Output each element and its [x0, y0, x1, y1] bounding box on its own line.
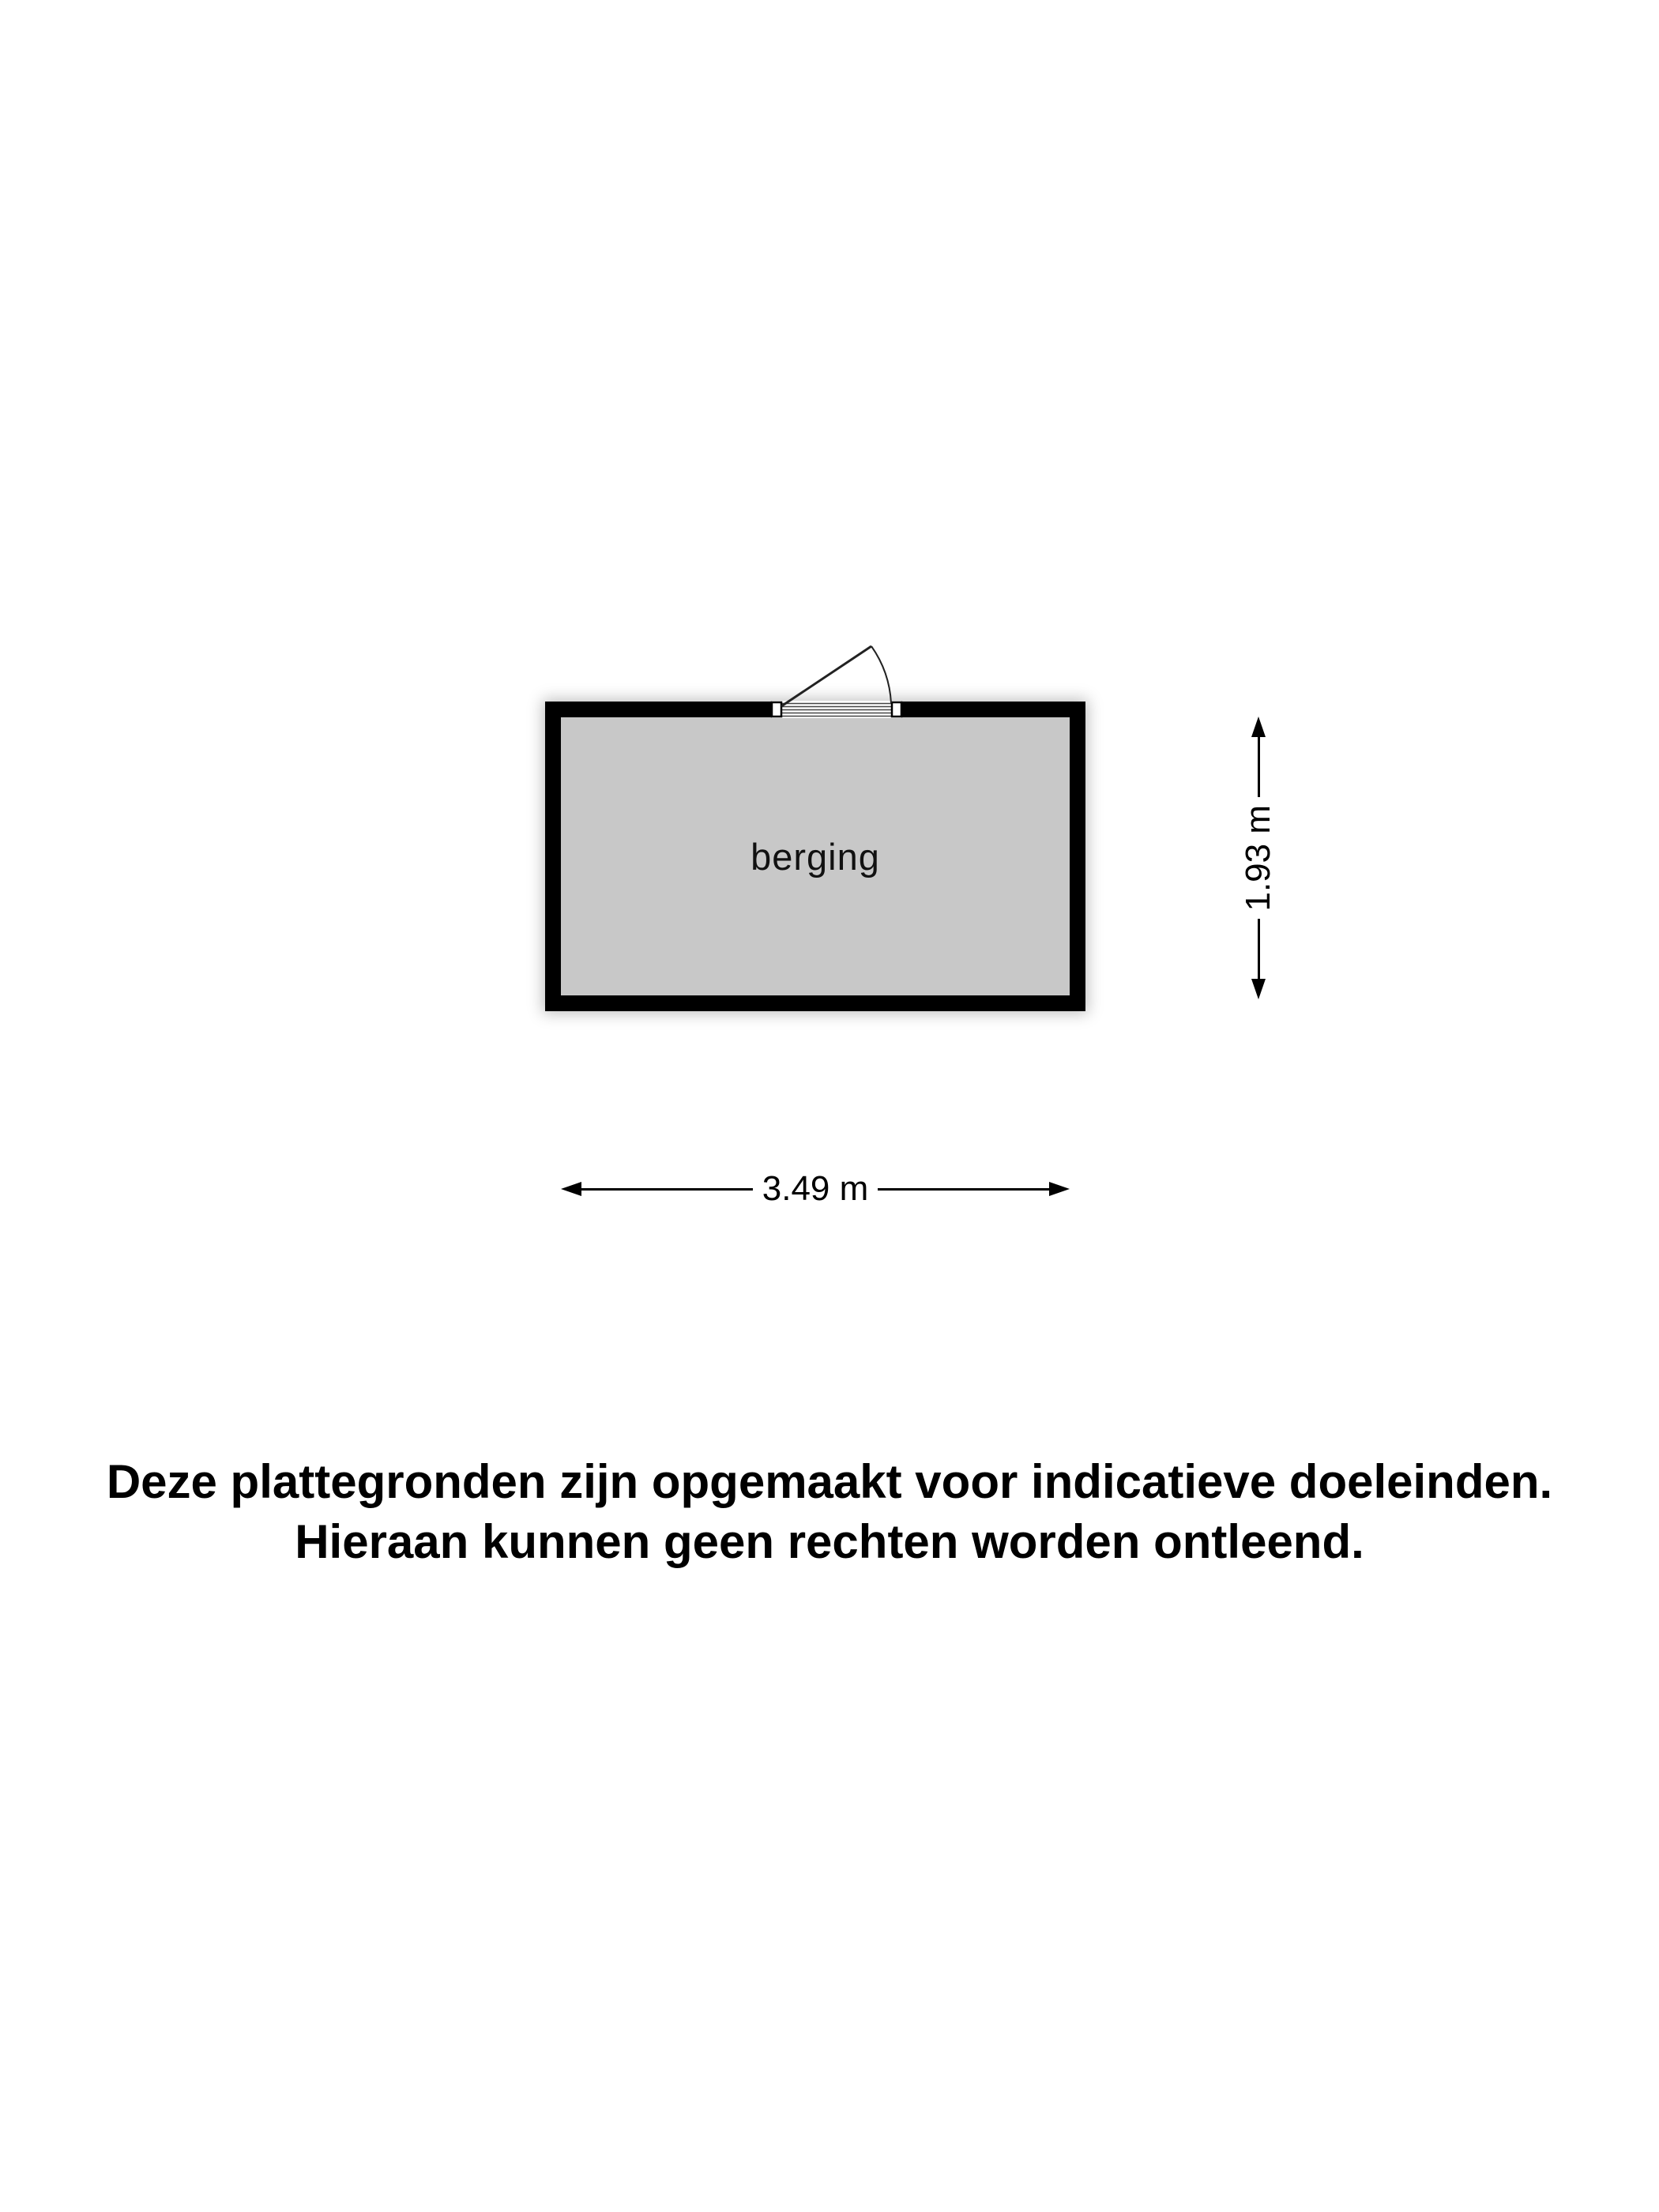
- disclaimer-text: Deze plattegronden zijn opgemaakt voor i…: [0, 1452, 1659, 1572]
- room-floor: berging: [561, 717, 1070, 995]
- room-label: berging: [750, 835, 880, 878]
- door-jamb-left: [772, 702, 781, 717]
- door-swing-arc: [871, 646, 891, 703]
- height-dimension: 1.93 m: [1238, 717, 1279, 999]
- disclaimer-line-2: Hieraan kunnen geen rechten worden ontle…: [0, 1512, 1659, 1572]
- door-jamb-right: [892, 702, 901, 717]
- dimension-line: [581, 1188, 753, 1191]
- width-dimension: 3.49 m: [561, 1170, 1070, 1208]
- arrow-left-icon: [561, 1182, 581, 1196]
- floorplan-page: berging 1.93 m 3.49 m Deze platte: [0, 0, 1659, 2212]
- door: [758, 628, 916, 731]
- dimension-line: [1258, 737, 1260, 797]
- door-leaf: [781, 646, 871, 706]
- arrow-right-icon: [1049, 1182, 1070, 1196]
- width-dimension-label: 3.49 m: [762, 1169, 869, 1209]
- arrow-up-icon: [1251, 717, 1266, 737]
- dimension-line: [878, 1188, 1049, 1191]
- height-dimension-label: 1.93 m: [1239, 805, 1278, 912]
- dimension-line: [1258, 919, 1260, 979]
- arrow-down-icon: [1251, 979, 1266, 999]
- room-walls: berging: [545, 702, 1085, 1011]
- disclaimer-line-1: Deze plattegronden zijn opgemaakt voor i…: [0, 1452, 1659, 1512]
